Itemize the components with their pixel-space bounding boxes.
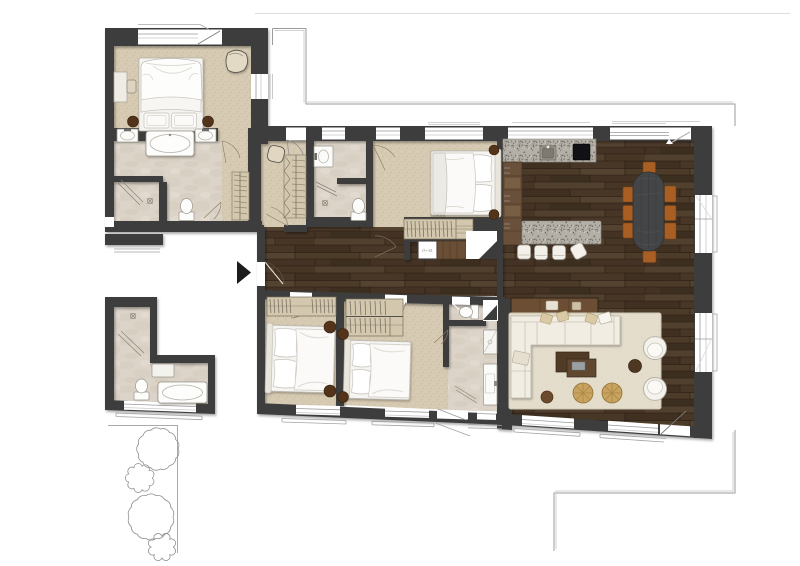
svg-text:SCHRANK: SCHRANK (430, 214, 446, 218)
svg-text:LT.+ SZ.: LT.+ SZ. (422, 249, 434, 253)
